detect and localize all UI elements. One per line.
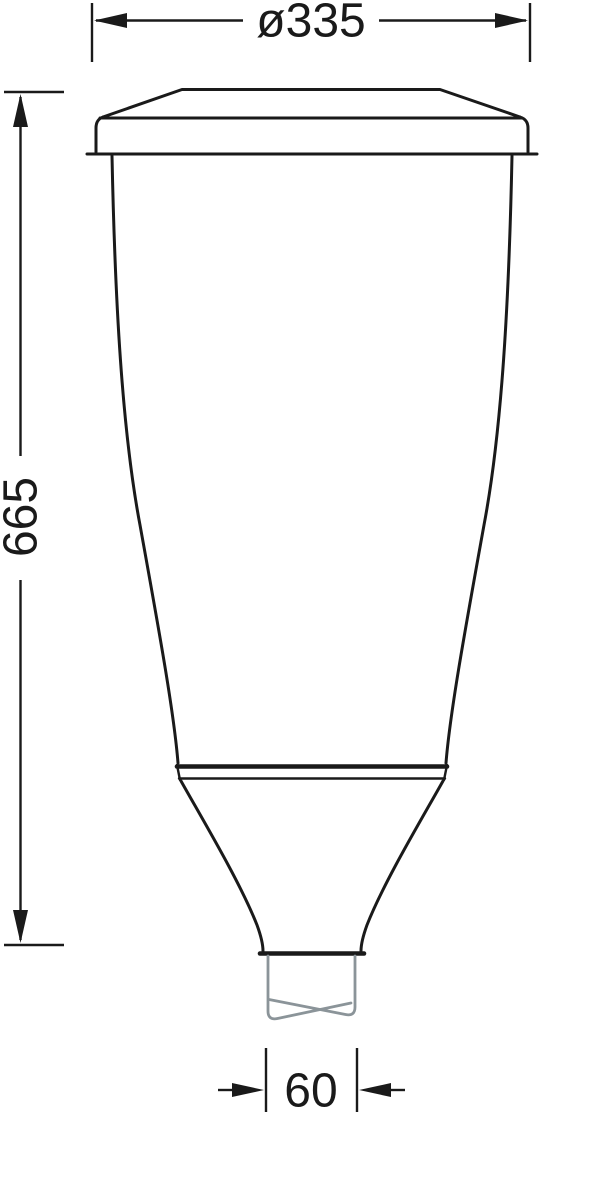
arrowhead-inward-right-icon	[359, 1083, 391, 1097]
body-left-profile	[112, 156, 178, 763]
arrowhead-down-icon	[13, 910, 28, 943]
top-diameter-label: ø335	[256, 0, 365, 48]
body-outline	[87, 90, 537, 954]
outlet-width-dimension: 60	[218, 1048, 405, 1118]
height-label: 665	[0, 477, 48, 557]
arrowhead-left-icon	[94, 13, 127, 28]
funnel-left-profile	[181, 781, 263, 951]
cap-left-edge	[96, 117, 103, 152]
tube-break-left	[268, 956, 351, 1019]
height-dimension: 665	[0, 92, 64, 945]
arrowhead-inward-left-icon	[232, 1083, 264, 1097]
top-diameter-dimension: ø335	[92, 0, 530, 62]
cap-right-edge	[520, 117, 528, 152]
body-right-profile	[446, 156, 512, 763]
technical-dimension-drawing: ø335 665 60	[0, 0, 606, 1200]
cap-top-outline	[103, 90, 520, 118]
funnel-right-profile	[361, 781, 443, 951]
arrowhead-right-icon	[495, 13, 528, 28]
outlet-width-label: 60	[284, 1065, 337, 1118]
tube-break	[268, 956, 355, 1019]
arrowhead-up-icon	[13, 94, 28, 127]
